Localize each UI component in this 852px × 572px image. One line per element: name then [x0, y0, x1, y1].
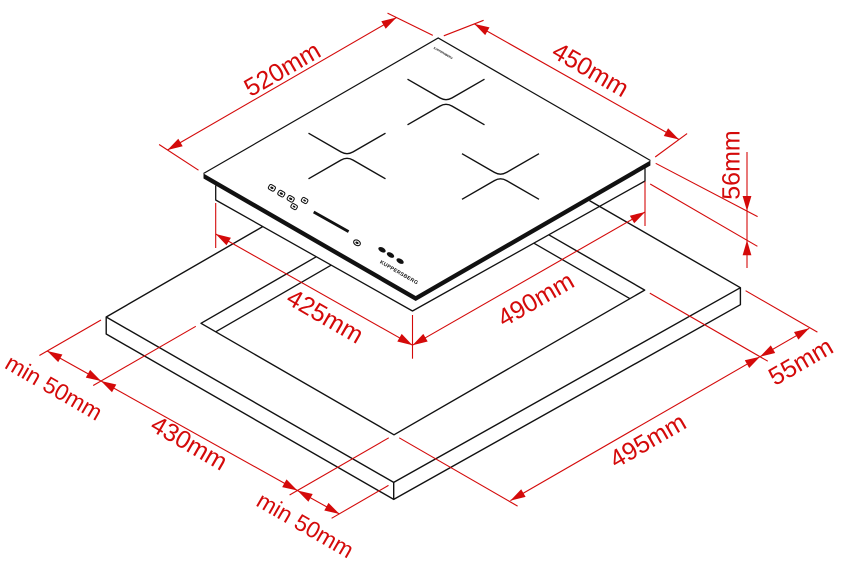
- svg-text:490mm: 490mm: [493, 267, 579, 333]
- svg-text:55mm: 55mm: [764, 333, 838, 392]
- svg-text:495mm: 495mm: [605, 408, 691, 474]
- svg-text:520mm: 520mm: [239, 37, 325, 103]
- svg-text:56mm: 56mm: [718, 130, 746, 199]
- svg-text:450mm: 450mm: [547, 37, 633, 103]
- svg-text:min 50mm: min 50mm: [1, 349, 107, 425]
- svg-text:425mm: 425mm: [282, 284, 368, 350]
- svg-text:430mm: 430mm: [146, 410, 232, 476]
